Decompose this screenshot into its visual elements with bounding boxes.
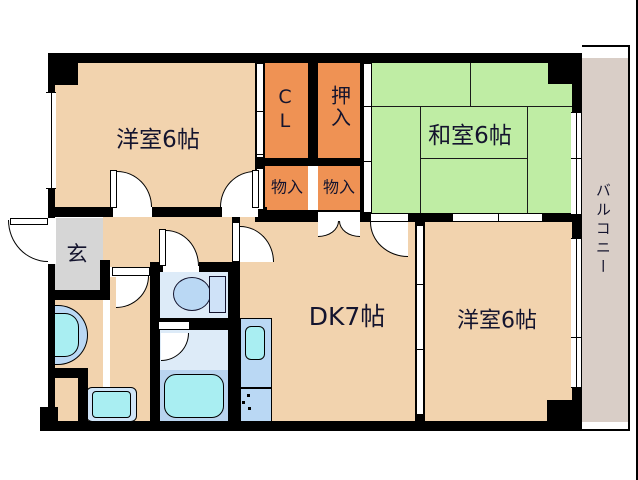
door-tick [364,106,371,107]
window [46,92,56,142]
door-tick [417,284,423,285]
door-swing-arc [8,220,48,262]
genkan-label: 玄 [67,243,88,265]
door-leaf [232,222,240,262]
storage-2-label: 物入 [323,180,355,197]
wall [150,267,160,422]
fusuma-sliding-door [363,63,372,213]
tatami-line [372,106,572,107]
washing-machine-pan-inner [92,391,131,418]
stove-burners-icon [242,401,245,404]
toilet-tank-icon [209,276,226,313]
door-leaf [112,267,150,276]
closet-cl-label: CL [274,86,294,134]
door-leaf [159,229,166,266]
door-tick [417,349,423,350]
kitchen-sink-icon [245,326,265,360]
window-glass-line [51,93,52,141]
west-room-top-doorway [222,207,258,217]
door-leaf [370,213,409,222]
window [571,238,581,289]
wall [228,330,240,422]
west-room-top-doorway [113,207,152,217]
toilet-icon [173,277,211,311]
sliding-partition-dk [416,225,424,415]
wall [308,53,318,166]
wall [548,62,573,84]
tatami-line [420,107,421,213]
window [571,112,581,215]
window-tick [571,158,581,159]
balcony-label: バルコニー [594,183,610,278]
door-leaf [10,218,48,225]
door-leaf [158,321,190,330]
wall [48,421,582,431]
door-tick [257,154,263,155]
window [46,140,56,189]
window-glass-line [576,239,577,288]
storage-1-label: 物入 [271,180,303,197]
closet-door [256,63,264,158]
washbasin-bowl-icon [55,313,79,357]
window-tick [571,337,581,338]
west-room-top-label: 洋室6帖 [116,128,200,152]
entry-doorway [47,218,56,264]
door-leaf [252,170,259,208]
stove-unit [240,388,272,422]
dk-label: DK7帖 [309,304,386,330]
tatami-line [527,107,528,213]
floor-plan: 洋室6帖 和室6帖 DK7帖 洋室6帖 CL 押入 物入 物入 玄 バルコニー [0,0,638,480]
wall [48,290,103,300]
door-tick [498,214,499,221]
window-glass-line [51,140,52,188]
door-tick [257,111,263,112]
stove-burners-icon [247,394,250,397]
window-glass-line [576,113,577,214]
wall [78,368,88,430]
door-tick [364,161,371,162]
oshiire-label: 押入 [329,85,350,129]
window [571,288,581,388]
tatami-line [470,63,471,107]
west-room-bottom-label: 洋室6帖 [457,309,537,332]
stove-burners-icon [248,407,251,410]
tatami-line [420,158,527,159]
japanese-room-label: 和室6帖 [428,124,512,148]
bathtub-icon [164,374,224,418]
wall [255,158,372,166]
door-leaf [110,170,117,208]
sliding-doors-japanese-room [452,213,543,222]
